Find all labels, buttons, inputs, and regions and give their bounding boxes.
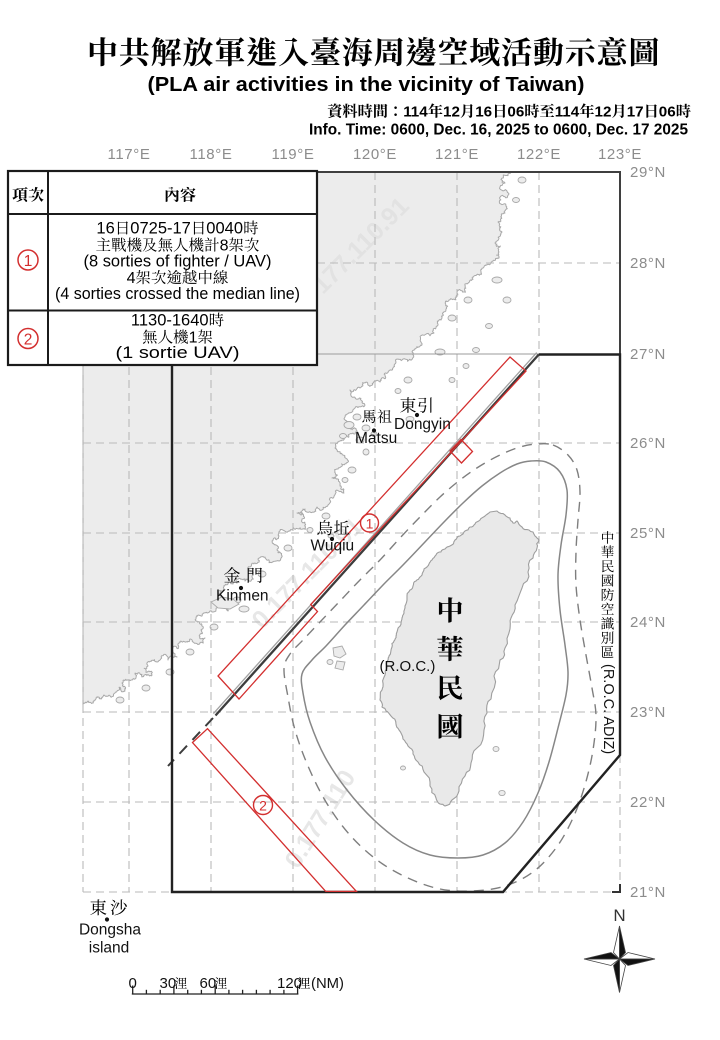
svg-text:0: 0	[129, 975, 137, 992]
svg-text:60: 60	[200, 975, 217, 992]
svg-text:25°N: 25°N	[630, 525, 666, 542]
svg-text:21°N: 21°N	[630, 884, 666, 901]
svg-text:1: 1	[24, 253, 33, 270]
svg-text:16: 16	[96, 220, 114, 238]
svg-text:29°N: 29°N	[630, 164, 666, 181]
svg-text:Matsu: Matsu	[355, 430, 397, 447]
svg-text:(R.O.C. ADIZ): (R.O.C. ADIZ)	[600, 664, 616, 754]
svg-text:2: 2	[259, 798, 267, 814]
svg-text:Dongyin: Dongyin	[394, 416, 451, 433]
svg-text:06: 06	[507, 104, 524, 121]
svg-text:114: 114	[555, 104, 580, 121]
svg-text:120°E: 120°E	[353, 146, 397, 163]
svg-text:1: 1	[366, 516, 374, 532]
svg-text:Wuqiu: Wuqiu	[311, 538, 355, 555]
svg-text:2: 2	[24, 332, 33, 349]
svg-text:119°E: 119°E	[272, 146, 315, 163]
svg-text:06: 06	[659, 104, 676, 121]
svg-text:(R.O.C.): (R.O.C.)	[380, 658, 436, 675]
svg-text:(1 sortie UAV): (1 sortie UAV)	[116, 344, 240, 362]
svg-text:12: 12	[443, 104, 460, 121]
svg-text:27°N: 27°N	[630, 346, 666, 363]
svg-text:Kinmen: Kinmen	[216, 588, 269, 605]
svg-text:26°N: 26°N	[630, 435, 666, 452]
svg-text:121°E: 121°E	[435, 146, 479, 163]
svg-text:(NM): (NM)	[311, 975, 344, 992]
svg-text:(PLA air activities in the vic: (PLA air activities in the vicinity of T…	[148, 74, 585, 96]
svg-text:114: 114	[403, 104, 428, 121]
svg-text:N: N	[613, 906, 625, 925]
svg-text:22°N: 22°N	[630, 794, 666, 811]
svg-text:16: 16	[475, 104, 492, 121]
svg-text:28°N: 28°N	[630, 255, 666, 272]
svg-text:12: 12	[595, 104, 612, 121]
svg-text:30: 30	[160, 975, 177, 992]
svg-text:Dongsha: Dongsha	[79, 922, 141, 939]
svg-text:123°E: 123°E	[598, 146, 642, 163]
svg-text:17: 17	[627, 104, 644, 121]
svg-text:(4 sorties crossed the median: (4 sorties crossed the median line)	[55, 285, 300, 303]
svg-text:(8 sorties of fighter / UAV): (8 sorties of fighter / UAV)	[84, 253, 272, 271]
svg-text:Info. Time: 0600, Dec. 16, 202: Info. Time: 0600, Dec. 16, 2025 to 0600,…	[309, 122, 688, 139]
svg-text:island: island	[89, 940, 130, 957]
svg-text:117°E: 117°E	[108, 146, 151, 163]
svg-text:23°N: 23°N	[630, 704, 666, 721]
svg-text:122°E: 122°E	[517, 146, 561, 163]
svg-text:1130-1640: 1130-1640	[131, 312, 209, 330]
svg-text:24°N: 24°N	[630, 614, 666, 631]
svg-text:0725-17: 0725-17	[130, 220, 191, 238]
svg-text:118°E: 118°E	[190, 146, 233, 163]
svg-text:0040: 0040	[206, 220, 243, 238]
svg-text:120: 120	[277, 975, 302, 992]
